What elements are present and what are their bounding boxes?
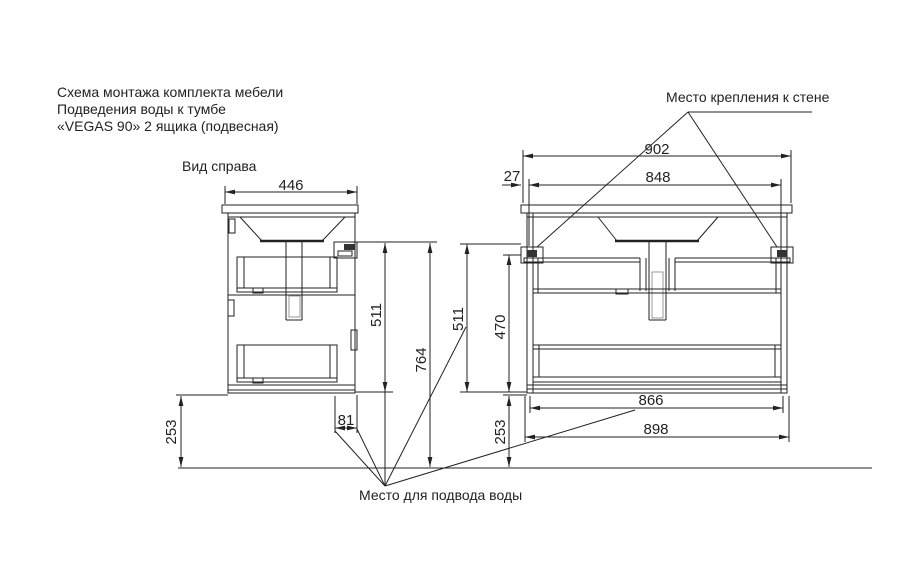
installation-diagram: Схема монтажа комплекта мебели Подведени… (0, 0, 900, 568)
front-sink-bowl (598, 217, 718, 241)
side-view-label: Вид справа (182, 158, 257, 174)
front-drain-pipe (649, 241, 666, 320)
side-sink-bowl (240, 217, 345, 241)
dim-front-height: 511 (450, 307, 467, 331)
water-supply-label: Место для подвода воды (359, 487, 522, 503)
dim-side-height: 511 (368, 303, 385, 327)
side-view-drawing (222, 205, 358, 393)
side-drain-pipe (286, 241, 302, 320)
side-wall-bracket (334, 242, 357, 258)
dim-side-depth: 446 (278, 177, 303, 194)
wall-bracket-right (771, 247, 793, 263)
dim-bracket-span: 848 (645, 169, 670, 186)
side-drawer-bottom (228, 345, 355, 390)
dim-front-total-width: 902 (644, 141, 669, 158)
dim-carcass-height: 470 (492, 314, 509, 339)
front-drawer-top (533, 258, 781, 294)
title-line-3: «VEGAS 90» 2 ящика (подвесная) (57, 118, 279, 134)
title-line-1: Схема монтажа комплекта мебели (57, 84, 283, 100)
dimension-lines (176, 150, 791, 486)
leader-lines (335, 112, 812, 486)
dim-total-height: 764 (413, 347, 430, 372)
wall-mount-label: Место крепления к стене (666, 89, 830, 105)
front-view-drawing (521, 205, 793, 393)
dim-water-offset: 81 (338, 412, 355, 429)
dim-floor-gap-left: 253 (163, 419, 180, 444)
wall-bracket-left (521, 247, 543, 263)
side-hinge-detail (228, 300, 234, 316)
dim-bracket-edge-offset: 27 (504, 168, 521, 185)
side-edge-detail (229, 219, 235, 233)
side-drawer-top (228, 257, 355, 295)
side-countertop (222, 205, 358, 213)
side-back-detail (351, 330, 357, 350)
title-line-2: Подведения воды к тумбе (57, 101, 226, 117)
front-drawer-bottom (527, 345, 787, 389)
dim-outer-width: 898 (643, 421, 668, 438)
dim-floor-gap-right: 253 (492, 419, 509, 444)
installation-scheme-page: Схема монтажа комплекта мебели Подведени… (0, 0, 900, 568)
dim-inner-width: 866 (638, 392, 663, 409)
